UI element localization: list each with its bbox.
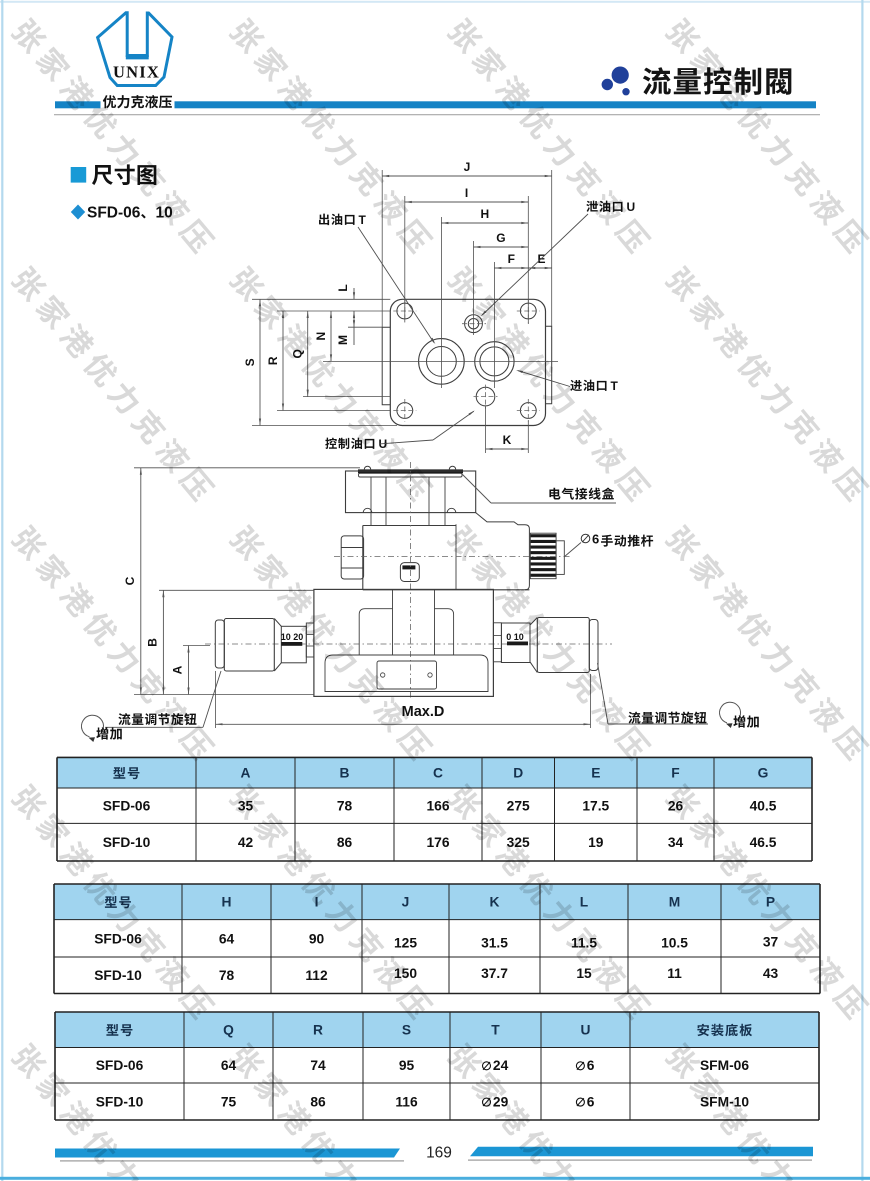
svg-text:75: 75	[221, 1095, 237, 1110]
svg-text:A: A	[171, 665, 185, 674]
svg-text:N: N	[314, 332, 328, 341]
svg-text:17.5: 17.5	[582, 799, 609, 814]
svg-text:46.5: 46.5	[750, 835, 777, 850]
svg-text:E: E	[591, 766, 600, 781]
svg-text:112: 112	[305, 968, 328, 983]
svg-text:T: T	[359, 213, 367, 227]
svg-text:90: 90	[309, 931, 325, 946]
svg-text:24: 24	[493, 1058, 509, 1073]
svg-text:T: T	[611, 379, 619, 393]
svg-text:95: 95	[399, 1058, 415, 1073]
svg-text:78: 78	[219, 968, 235, 983]
svg-text:J: J	[464, 160, 471, 174]
svg-text:C: C	[433, 766, 443, 781]
svg-text:UNIX: UNIX	[113, 63, 160, 82]
svg-text:R: R	[313, 1023, 323, 1038]
svg-text:G: G	[758, 766, 769, 781]
svg-text:37: 37	[763, 934, 779, 949]
svg-text:M: M	[336, 335, 350, 345]
svg-text:I: I	[465, 186, 468, 200]
svg-text:86: 86	[337, 835, 353, 850]
svg-text:SFD-06: SFD-06	[96, 1058, 144, 1073]
svg-text:A: A	[241, 766, 251, 781]
svg-text:SFD-10: SFD-10	[96, 1095, 144, 1110]
svg-text:U: U	[627, 200, 636, 214]
svg-text:6: 6	[592, 532, 599, 547]
svg-text:R: R	[266, 356, 280, 365]
svg-text:L: L	[580, 895, 588, 910]
svg-text:SFD-06: SFD-06	[103, 799, 151, 814]
svg-text:J: J	[402, 895, 410, 910]
svg-text:C: C	[123, 576, 137, 585]
svg-text:64: 64	[219, 931, 235, 946]
svg-text:34: 34	[668, 835, 684, 850]
svg-text:H: H	[480, 207, 489, 221]
svg-text:42: 42	[238, 835, 254, 850]
svg-text:H: H	[222, 895, 232, 910]
svg-text:15: 15	[576, 966, 592, 981]
svg-text:SFD-10: SFD-10	[94, 968, 142, 983]
svg-text:M: M	[669, 895, 681, 910]
svg-text:31.5: 31.5	[481, 935, 508, 950]
svg-text:T: T	[491, 1023, 500, 1038]
svg-text:11: 11	[667, 966, 682, 981]
svg-text:F: F	[671, 766, 679, 781]
svg-text:6: 6	[587, 1058, 595, 1073]
svg-text:74: 74	[310, 1058, 326, 1073]
svg-text:K: K	[503, 433, 512, 447]
svg-text:125: 125	[394, 935, 417, 950]
svg-text:0 10: 0 10	[506, 632, 524, 642]
svg-text:169: 169	[426, 1145, 452, 1162]
svg-text:37.7: 37.7	[481, 966, 508, 981]
svg-text:43: 43	[763, 966, 779, 981]
svg-text:10.5: 10.5	[661, 935, 688, 950]
svg-text:19: 19	[588, 835, 604, 850]
svg-text:S: S	[402, 1023, 411, 1038]
svg-text:116: 116	[395, 1095, 418, 1110]
svg-text:B: B	[340, 766, 350, 781]
svg-text:U: U	[581, 1023, 591, 1038]
svg-text:SFM-06: SFM-06	[700, 1058, 749, 1073]
svg-text:S: S	[243, 358, 257, 366]
svg-text:Q: Q	[223, 1023, 234, 1038]
svg-text:166: 166	[426, 799, 449, 814]
svg-text:40.5: 40.5	[750, 799, 777, 814]
svg-text:G: G	[496, 231, 505, 245]
svg-text:P: P	[766, 895, 775, 910]
svg-text:176: 176	[426, 835, 449, 850]
svg-text:86: 86	[310, 1095, 326, 1110]
svg-text:F: F	[508, 252, 515, 266]
svg-text:K: K	[490, 895, 500, 910]
svg-text:78: 78	[337, 799, 353, 814]
svg-text:6: 6	[587, 1095, 595, 1110]
svg-text:D: D	[513, 766, 523, 781]
svg-text:275: 275	[507, 799, 530, 814]
svg-text:10 20: 10 20	[281, 632, 304, 642]
svg-text:L: L	[336, 284, 350, 291]
svg-text:B: B	[145, 638, 159, 647]
svg-text:SFD-10: SFD-10	[103, 835, 151, 850]
svg-text:SFD-06: SFD-06	[87, 205, 141, 222]
